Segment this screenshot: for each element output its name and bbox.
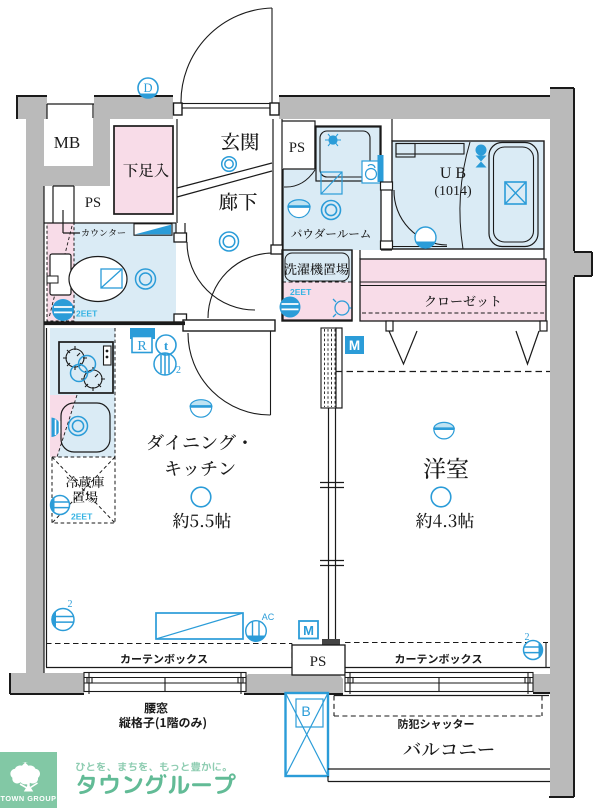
- svg-text:AC: AC: [262, 612, 275, 622]
- svg-text:2EET: 2EET: [290, 287, 312, 297]
- svg-text:U B: U B: [440, 165, 466, 182]
- svg-text:D: D: [143, 81, 152, 95]
- svg-text:R: R: [137, 339, 147, 354]
- svg-text:t: t: [164, 338, 169, 353]
- svg-text:M: M: [349, 338, 360, 353]
- svg-text:B: B: [301, 703, 310, 719]
- svg-text:PS: PS: [85, 195, 101, 211]
- svg-text:PS: PS: [310, 654, 327, 670]
- svg-text:2EET: 2EET: [71, 512, 93, 522]
- svg-text:2: 2: [176, 365, 181, 376]
- svg-text:(1014): (1014): [434, 184, 472, 199]
- svg-text:PS: PS: [289, 140, 305, 156]
- svg-text:TOWN GROUP: TOWN GROUP: [1, 794, 57, 803]
- svg-text:2EET: 2EET: [76, 309, 98, 319]
- svg-text:2: 2: [68, 599, 73, 610]
- svg-text:2: 2: [525, 632, 530, 643]
- svg-text:M: M: [303, 623, 314, 638]
- svg-text:MB: MB: [54, 133, 80, 152]
